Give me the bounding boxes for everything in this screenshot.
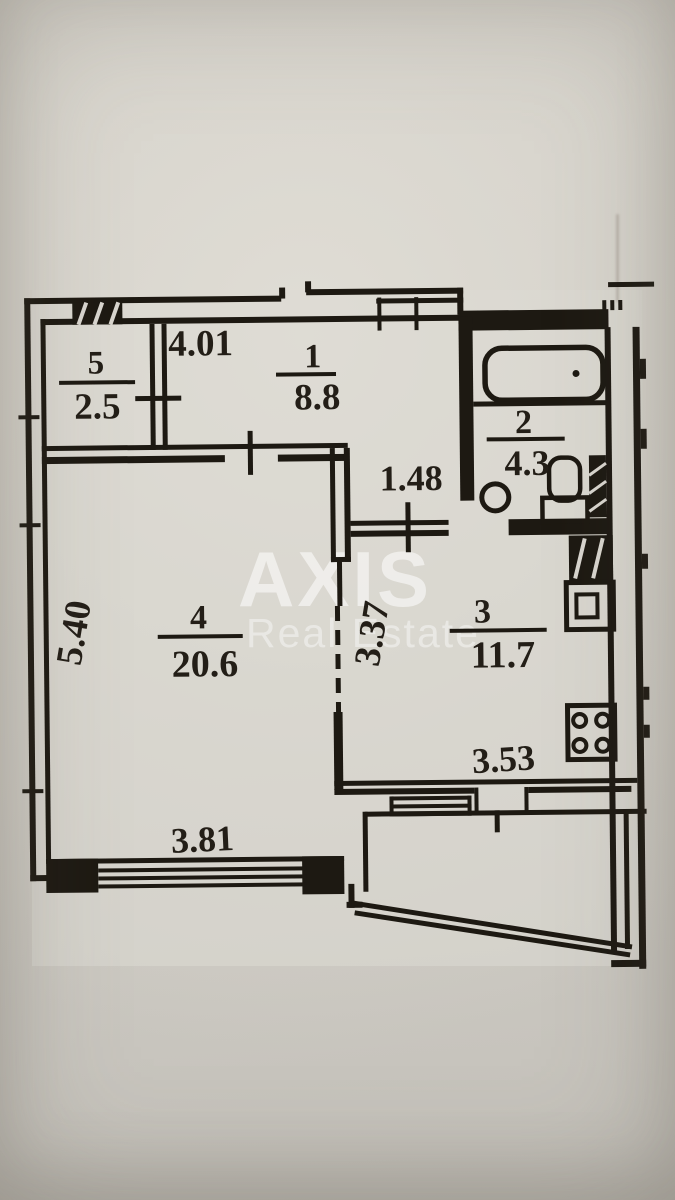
room-5-area: 2.5 [74, 386, 121, 427]
wall-joint-tick [22, 789, 43, 793]
door-tick-closet [135, 396, 181, 401]
vent-shaft [589, 455, 607, 517]
south-walls [45, 778, 638, 897]
kitchen-sink [566, 582, 613, 629]
bathtub-drain [572, 370, 579, 377]
bathroom-fixtures [473, 347, 611, 522]
room-2-number: 2 [515, 404, 532, 441]
dim-kitchen-height: 3.37 [347, 598, 398, 669]
room-1-area: 8.8 [294, 377, 341, 418]
dim-hall-width: 4.01 [168, 323, 233, 365]
room-5-number: 5 [87, 345, 104, 381]
stove [567, 705, 615, 759]
door-tick-kitchen [405, 502, 411, 552]
bathtub [485, 347, 604, 400]
room-2-area: 4.3 [504, 443, 549, 483]
floor-plan-photo: AXIS Real Estate [0, 0, 675, 1200]
balcony-door [474, 787, 528, 833]
wall-joint-tick [20, 523, 41, 527]
room-3-number: 3 [474, 593, 491, 630]
door-tick-living [248, 431, 253, 475]
room-4-area: 20.6 [172, 643, 239, 686]
kitchen-fixtures [566, 535, 615, 759]
window-tick [414, 297, 418, 330]
wall-joint-tick [18, 415, 39, 419]
floor-plan-drawing: 5 2.5 1 8.8 2 4.3 4 20.6 3 11.7 4.01 1.4… [0, 0, 675, 1200]
room-1-number: 1 [304, 338, 321, 375]
adjacent-wall-segment [608, 282, 654, 287]
washbasin [482, 484, 509, 511]
vent-ticks [602, 300, 622, 310]
dim-living-height: 5.40 [49, 597, 100, 668]
dim-kitchen-width: 3.53 [471, 737, 536, 781]
room-4-number: 4 [190, 599, 207, 636]
dim-living-width: 3.81 [170, 818, 235, 861]
entry-door [72, 302, 122, 325]
window-tick [377, 298, 381, 331]
dim-corridor-width: 1.48 [379, 458, 442, 499]
vent-shaft [569, 535, 613, 581]
room-3-area: 11.7 [471, 634, 536, 677]
dashed-partition [337, 606, 338, 712]
window-living [98, 866, 306, 888]
